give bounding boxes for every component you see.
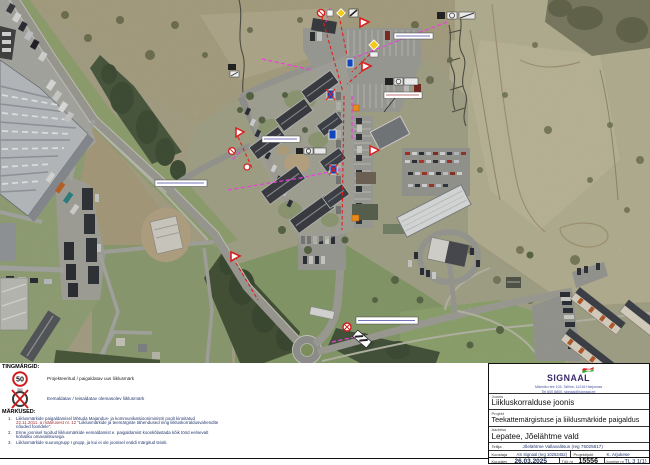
svg-text:50: 50 (16, 375, 24, 384)
